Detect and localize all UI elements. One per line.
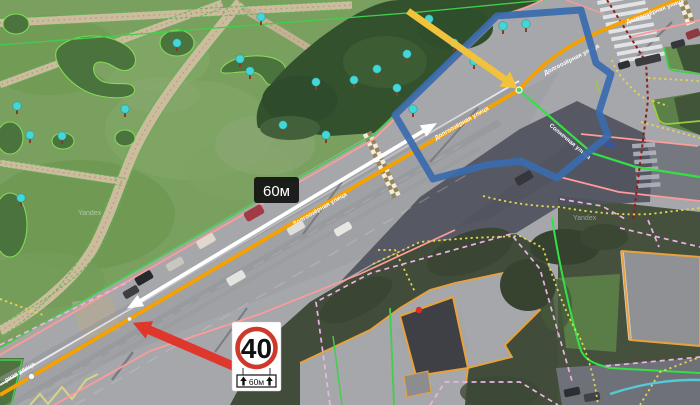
svg-text:60м: 60м [263,183,290,200]
svg-text:Yandex: Yandex [573,215,597,222]
svg-text:40: 40 [241,333,272,364]
svg-text:60м: 60м [249,377,264,387]
svg-text:Yandex: Yandex [78,210,102,217]
